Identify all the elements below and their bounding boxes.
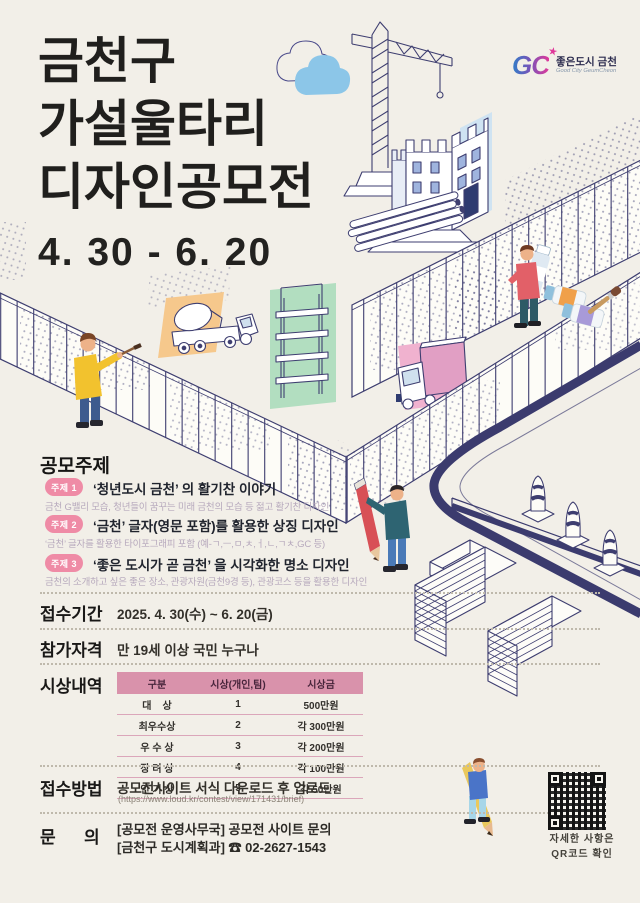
awards-header-category: 구분: [117, 672, 197, 694]
award-count: 2: [197, 715, 279, 736]
topic-badge-1: 주제 1: [45, 478, 83, 496]
table-row: 장 려 상 4 각 100만원: [117, 757, 363, 778]
award-name: 장 려 상: [117, 757, 197, 778]
award-prize: 각 100만원: [279, 757, 363, 778]
period-value: 2025. 4. 30(수) ~ 6. 20(금): [117, 603, 273, 623]
logo-names: 좋은도시 금천 Good City GeumCheon: [556, 56, 617, 75]
topic-title-3: ‘좋은 도시가 곧 금천’ 을 시각화한 명소 디자인: [93, 554, 350, 574]
table-row: 우 수 상 3 각 200만원: [117, 736, 363, 757]
section-label-how: 접수방법: [40, 775, 103, 800]
awards-header-prize: 시상금: [279, 672, 363, 694]
award-count: 4: [197, 757, 279, 778]
awards-header-row: 구분 시상(개인,팀) 시상금: [117, 672, 363, 694]
poster-title-line1: 금천구: [38, 30, 314, 93]
poster-title-line3: 디자인공모전: [38, 156, 314, 219]
section-label-topics: 공모주제: [40, 451, 110, 478]
award-name: 대 상: [117, 694, 197, 715]
contact-line1: [공모전 운영사무국] 공모전 사이트 문의: [117, 821, 331, 839]
city-logo: GC ★ 좋은도시 금천 Good City GeumCheon: [512, 50, 617, 81]
award-count: 1: [197, 694, 279, 715]
award-name: 우 수 상: [117, 736, 197, 757]
qr-finder-icon: [548, 772, 562, 786]
qr-code: [548, 772, 606, 830]
qr-finder-icon: [548, 816, 562, 830]
pencil-walker-figure: [462, 758, 493, 836]
topic-desc-3: 금천의 소개하고 싶은 좋은 장소, 관광자원(금천9경 등), 관광코스 등을…: [45, 574, 367, 588]
topic-badge-3: 주제 3: [45, 554, 83, 572]
eligibility-value: 만 19세 이상 국민 누구나: [117, 639, 259, 659]
qr-note: 자세한 사항은 QR코드 확인: [534, 833, 630, 862]
section-label-awards: 시상내역: [40, 672, 103, 697]
contest-dates: 4. 30 - 6. 20: [38, 231, 272, 275]
divider: [40, 765, 600, 767]
award-prize: 각 300만원: [279, 715, 363, 736]
cement-mixer-truck: [158, 292, 258, 358]
qr-note-line1: 자세한 사항은: [534, 833, 630, 848]
section-label-period: 접수기간: [40, 600, 103, 625]
logo-name-kr: 좋은도시 금천: [556, 56, 617, 68]
divider: [40, 812, 600, 814]
scaffolding: [270, 283, 336, 409]
topic-title-2: ‘금천’ 글자(영문 포함)를 활용한 상징 디자인: [93, 515, 339, 535]
award-prize: 500만원: [279, 694, 363, 715]
qr-finder-icon: [592, 772, 606, 786]
poster: 금천구 가설울타리 디자인공모전 4. 30 - 6. 20 GC ★ 좋은도시…: [0, 0, 640, 903]
table-row: 대 상 1 500만원: [117, 694, 363, 715]
logo-gc-text: GC: [512, 50, 549, 80]
table-row: 최우수상 2 각 300만원: [117, 715, 363, 736]
poster-title: 금천구 가설울타리 디자인공모전: [38, 30, 314, 219]
topic-desc-1: 금천 G밸리 모습, 청년들이 꿈꾸는 미래 금천의 모습 등 젊고 활기찬 디…: [45, 499, 329, 513]
board-stacks: [415, 540, 581, 696]
divider: [40, 628, 600, 630]
award-count: 3: [197, 736, 279, 757]
award-prize: 각 200만원: [279, 736, 363, 757]
award-name: 최우수상: [117, 715, 197, 736]
section-label-eligibility: 참가자격: [40, 636, 103, 661]
logo-monogram: GC ★: [512, 50, 549, 81]
logo-name-en: Good City GeumCheon: [556, 68, 617, 75]
topic-title-1: ‘청년도시 금천’ 의 활기찬 이야기: [93, 478, 276, 498]
qr-note-line2: QR코드 확인: [534, 848, 630, 863]
awards-header-count: 시상(개인,팀): [197, 672, 279, 694]
contact-line2: [금천구 도시계획과] ☎ 02-2627-1543: [117, 839, 326, 857]
topic-desc-2: ‘금천’ 글자를 활용한 타이포그래피 포함 (예-ㄱ,ㅡ,ㅁ,ㅊ,ㅓ,ㄴ,ㄱㅊ…: [45, 536, 325, 550]
how-url: (https://www.loud.kr/contest/view/171431…: [118, 794, 304, 804]
divider: [40, 663, 600, 665]
section-label-contact: 문 의: [40, 823, 100, 848]
poster-title-line2: 가설울타리: [38, 93, 314, 156]
divider: [40, 592, 600, 594]
topic-badge-2: 주제 2: [45, 515, 83, 533]
